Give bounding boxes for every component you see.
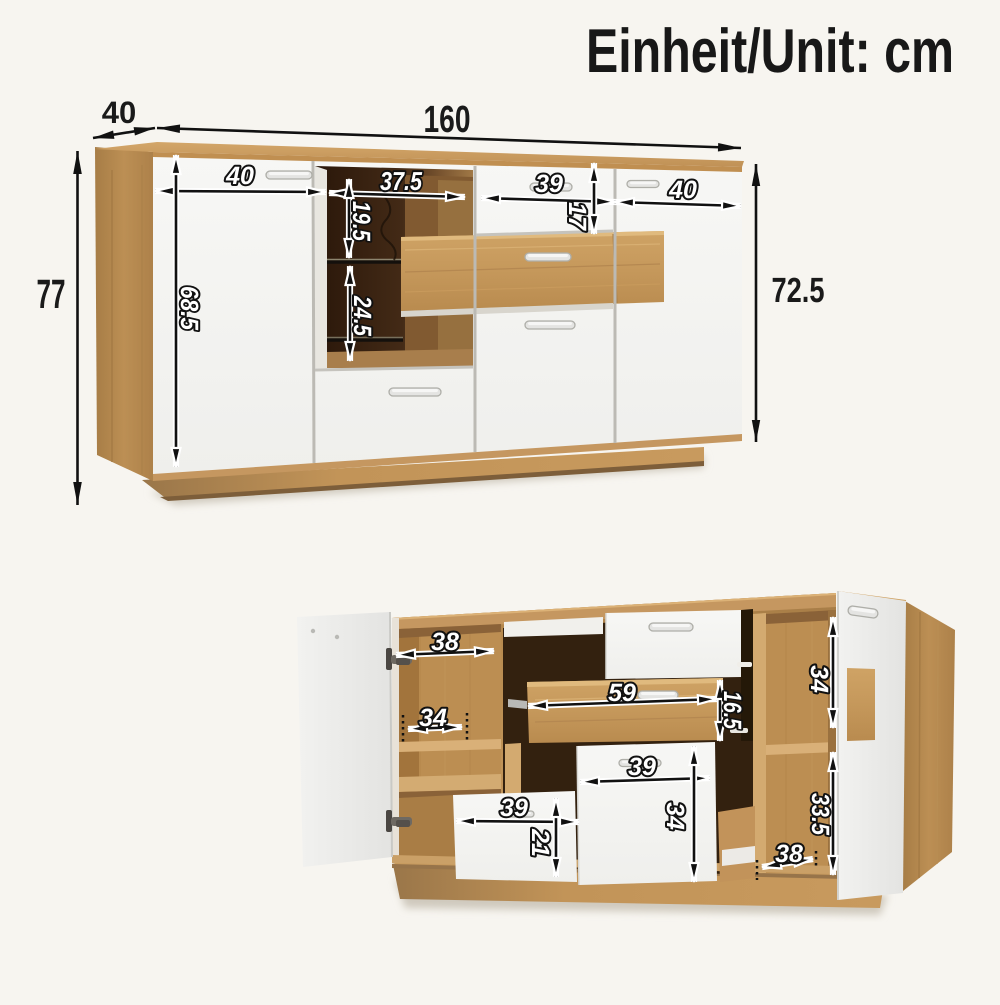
svg-text:34: 34 — [805, 665, 833, 693]
svg-text:39: 39 — [500, 794, 528, 822]
svg-text:59: 59 — [608, 679, 636, 707]
svg-text:77: 77 — [37, 271, 66, 317]
svg-text:Einheit/Unit: cm: Einheit/Unit: cm — [586, 17, 954, 86]
svg-text:39: 39 — [628, 753, 656, 781]
svg-text:39: 39 — [535, 170, 563, 198]
svg-text:72.5: 72.5 — [772, 271, 825, 310]
svg-text:34: 34 — [419, 704, 447, 732]
svg-text:37.5: 37.5 — [380, 166, 422, 196]
svg-text:68.5: 68.5 — [175, 286, 203, 331]
svg-text:40: 40 — [225, 162, 254, 190]
svg-text:33.5: 33.5 — [806, 793, 834, 836]
svg-text:40: 40 — [102, 95, 136, 130]
svg-text:19.5: 19.5 — [347, 201, 375, 242]
svg-text:40: 40 — [668, 176, 697, 204]
svg-text:17: 17 — [563, 202, 591, 231]
svg-text:34: 34 — [661, 802, 689, 830]
svg-text:38: 38 — [431, 628, 459, 656]
svg-text:24.5: 24.5 — [348, 295, 376, 337]
svg-text:16.5: 16.5 — [718, 691, 746, 730]
svg-text:21: 21 — [526, 828, 554, 857]
svg-text:160: 160 — [424, 99, 471, 141]
svg-text:38: 38 — [775, 840, 803, 868]
